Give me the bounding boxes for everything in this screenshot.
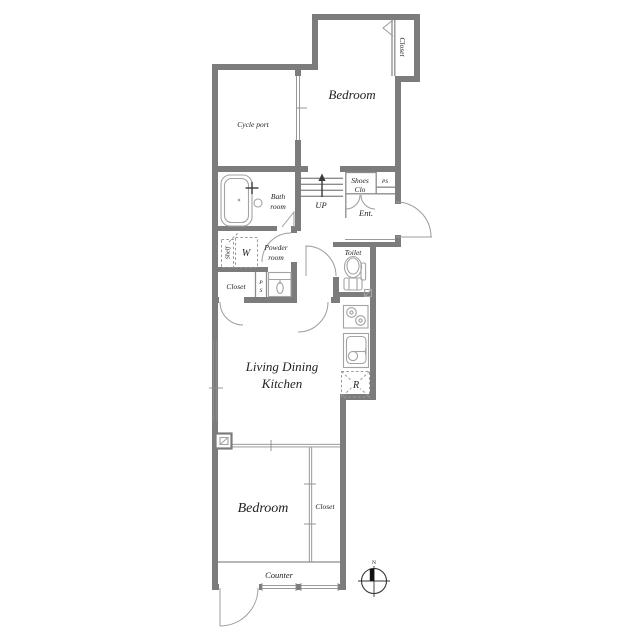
shoes-closet-label-line2: Clo [355, 185, 366, 194]
powder-room-label-line2: room [268, 253, 284, 262]
background [0, 0, 640, 640]
ps-entry-label: PS [381, 179, 388, 185]
up-label: UP [315, 200, 326, 210]
compass-north-label: N [372, 560, 376, 566]
ps-mid-label-p: P [258, 280, 263, 286]
entrance-label: Ent. [358, 208, 373, 218]
refrigerator-label: R [352, 380, 359, 391]
closet-bottom-label: Closet [315, 502, 335, 511]
shelf-label: Shelf [225, 246, 232, 260]
bedroom-bottom-label: Bedroom [238, 501, 289, 516]
ldk-label-line1: Living Dining [245, 359, 319, 374]
shoes-closet-label-line1: Shoes [351, 176, 369, 185]
toilet-label: Toilet [345, 248, 363, 257]
pipe-shaft-box-icon [216, 434, 232, 449]
bath-room-label-line2: room [270, 202, 286, 211]
bedroom-top-label: Bedroom [328, 87, 375, 102]
counter-label: Counter [265, 570, 294, 580]
ldk-label-line2: Kitchen [261, 376, 302, 391]
cycle-port-label: Cycle port [237, 120, 269, 129]
floor-plan-canvas: Closet Bedroom Cycle port Bath room UP S… [0, 0, 640, 640]
bath-room-label-line1: Bath [271, 192, 285, 201]
closet-top-label: Closet [398, 37, 407, 57]
ps-mid-label-s: S [260, 288, 263, 294]
powder-room-label-line1: Powder [263, 243, 287, 252]
floor-plan-drawing: Closet Bedroom Cycle port Bath room UP S… [0, 0, 640, 640]
closet-mid-label: Closet [226, 282, 246, 291]
